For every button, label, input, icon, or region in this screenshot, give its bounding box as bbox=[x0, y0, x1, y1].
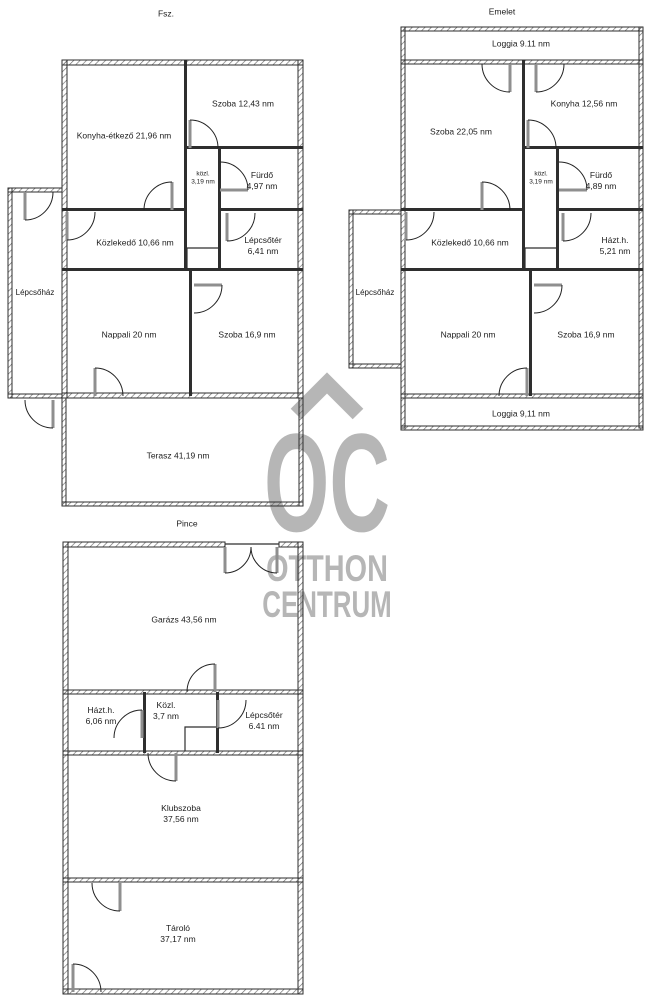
fsz-furdo-area: 4,97 nm bbox=[247, 181, 278, 192]
watermark-oc-logo: OC bbox=[264, 405, 390, 561]
fsz-furdo-label: Fürdő 4,97 nm bbox=[247, 170, 278, 192]
fsz-kozl-label: közl. 3,19 nm bbox=[191, 171, 215, 188]
door bbox=[559, 162, 587, 190]
pince-klubszoba-name: Klubszoba bbox=[161, 803, 201, 814]
floorplan-drawing: OC OTTHON CENTRUM bbox=[0, 0, 658, 1006]
emelet-szoba-felso-label: Szoba 22,05 nm bbox=[430, 126, 492, 137]
emelet-furdo-area: 4,89 nm bbox=[586, 181, 617, 192]
pince-hazth-name: Házt.h. bbox=[86, 705, 117, 716]
door bbox=[482, 64, 510, 92]
fsz-inner-walls bbox=[62, 60, 303, 396]
pince-kozl-name: Közl. bbox=[153, 700, 179, 711]
door bbox=[92, 883, 120, 911]
fsz-lepcsoter-name: Lépcsőtér bbox=[244, 235, 281, 246]
fsz-lepcsohaz-label: Lépcsőház bbox=[16, 288, 55, 298]
emelet-kozl-name: közl. bbox=[529, 171, 553, 179]
door bbox=[563, 213, 591, 241]
pince-tarolo-label: Tároló 37,17 nm bbox=[160, 923, 195, 945]
fsz-lepcsoter-label: Lépcsőtér 6,41 nm bbox=[244, 235, 281, 257]
door bbox=[25, 400, 53, 428]
pince-lepcsoter-label: Lépcsőtér 6.41 nm bbox=[245, 710, 282, 732]
pince-hazth-label: Házt.h. 6,06 nm bbox=[86, 705, 117, 727]
fsz-konyha-etkezo-label: Konyha-étkező 21,96 nm bbox=[77, 130, 172, 141]
door bbox=[67, 212, 95, 240]
emelet-loggia-felso-label: Loggia 9.11 nm bbox=[492, 38, 550, 49]
emelet-furdo-label: Fürdő 4,89 nm bbox=[586, 170, 617, 192]
door bbox=[218, 700, 246, 728]
door bbox=[73, 964, 101, 992]
door bbox=[534, 285, 562, 313]
pince-kozl-area: 3,7 nm bbox=[153, 711, 179, 722]
pince-klubszoba-label: Klubszoba 37,56 nm bbox=[161, 803, 201, 825]
fsz-nappali-label: Nappali 20 nm bbox=[102, 329, 157, 340]
fsz-terasz-label: Terasz 41,19 nm bbox=[147, 450, 210, 461]
door bbox=[482, 182, 510, 210]
emelet-kozlekedo-label: Közlekedő 10,66 nm bbox=[431, 237, 509, 248]
emelet-furdo-name: Fürdő bbox=[586, 170, 617, 181]
door bbox=[187, 664, 215, 692]
emelet-title: Emelet bbox=[489, 6, 515, 17]
emelet-doors bbox=[406, 64, 591, 396]
emelet-hazth-label: Házt.h. 5,21 nm bbox=[600, 235, 631, 257]
pince-garazs-label: Garázs 43,56 nm bbox=[151, 614, 216, 625]
door bbox=[190, 120, 218, 148]
door bbox=[536, 64, 564, 92]
pince-hazth-area: 6,06 nm bbox=[86, 716, 117, 727]
door bbox=[25, 192, 53, 220]
fsz-kozl-name: közl. bbox=[191, 171, 215, 179]
emelet-inner-walls bbox=[401, 60, 643, 396]
door bbox=[406, 212, 434, 240]
emelet-kozl-area: 3,19 nm bbox=[529, 179, 553, 187]
fsz-szoba-also-label: Szoba 16,9 nm bbox=[218, 329, 275, 340]
emelet-lepcsohaz-label: Lépcsőház bbox=[356, 288, 395, 298]
emelet-loggia-also-label: Loggia 9,11 nm bbox=[492, 408, 550, 419]
emelet-szoba-also-label: Szoba 16,9 nm bbox=[557, 329, 614, 340]
pince-tarolo-area: 37,17 nm bbox=[160, 934, 195, 945]
door bbox=[528, 120, 556, 148]
emelet-hazth-area: 5,21 nm bbox=[600, 246, 631, 257]
fsz-szoba-felso-label: Szoba 12,43 nm bbox=[212, 98, 274, 109]
emelet-outer-walls bbox=[349, 27, 643, 430]
emelet-konyha-label: Konyha 12,56 nm bbox=[551, 98, 618, 109]
pince-title: Pince bbox=[176, 518, 197, 529]
emelet-kozl-label: közl. 3,19 nm bbox=[529, 171, 553, 188]
emelet-hazth-name: Házt.h. bbox=[600, 235, 631, 246]
emelet-nappali-label: Nappali 20 nm bbox=[441, 329, 496, 340]
door bbox=[499, 368, 527, 396]
fsz-furdo-name: Fürdő bbox=[247, 170, 278, 181]
fsz-kozl-area: 3,19 nm bbox=[191, 179, 215, 187]
door bbox=[220, 162, 248, 190]
fsz-outer-walls bbox=[8, 60, 303, 506]
door bbox=[148, 753, 176, 781]
fsz-title: Fsz. bbox=[158, 8, 174, 19]
floorplan-page: OC OTTHON CENTRUM bbox=[0, 0, 658, 1006]
pince-tarolo-name: Tároló bbox=[160, 923, 195, 934]
pince-klubszoba-area: 37,56 nm bbox=[161, 814, 201, 825]
fsz-lepcsoter-area: 6,41 nm bbox=[244, 246, 281, 257]
pince-lepcsoter-name: Lépcsőtér bbox=[245, 710, 282, 721]
pince-kozl-label: Közl. 3,7 nm bbox=[153, 700, 179, 722]
door bbox=[114, 710, 142, 738]
pince-lepcsoter-area: 6.41 nm bbox=[245, 721, 282, 732]
door bbox=[95, 368, 123, 396]
door bbox=[194, 285, 222, 313]
watermark-centrum: CENTRUM bbox=[262, 583, 391, 625]
door bbox=[144, 182, 172, 210]
fsz-kozlekedo-label: Közlekedő 10,66 nm bbox=[96, 237, 174, 248]
